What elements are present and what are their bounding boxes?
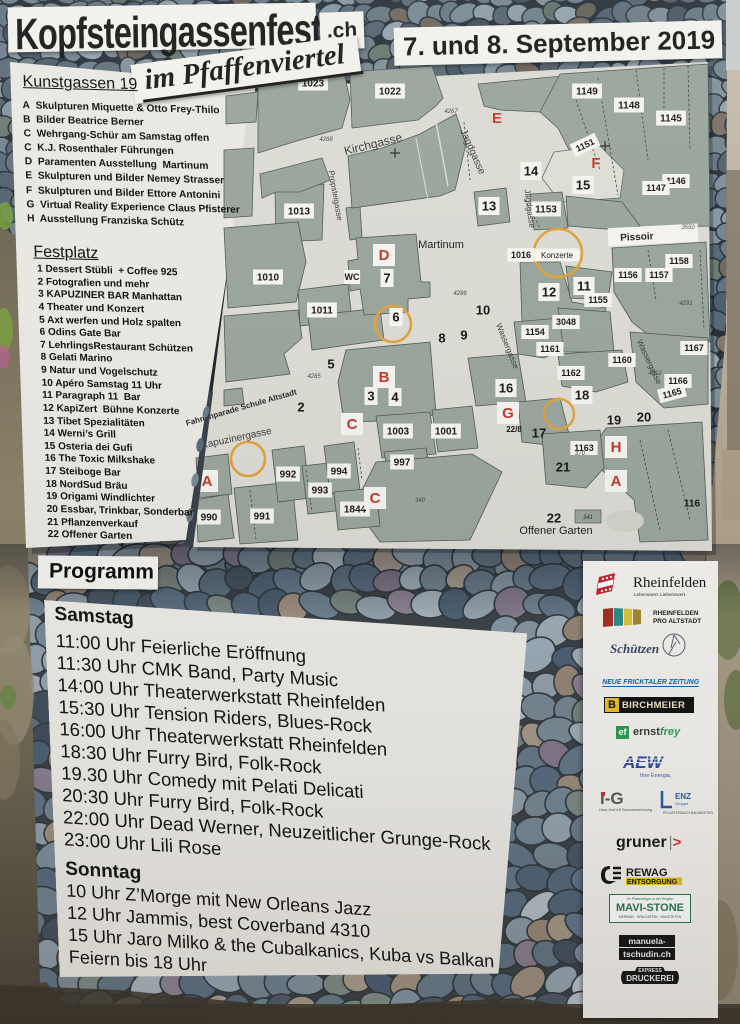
svg-text:1167: 1167 xyxy=(684,343,704,353)
svg-text:Rheinfelden: Rheinfelden xyxy=(633,575,707,591)
svg-text:8: 8 xyxy=(438,331,445,346)
svg-text:REWAG: REWAG xyxy=(626,867,668,879)
svg-text:1154: 1154 xyxy=(525,327,545,337)
svg-text:10: 10 xyxy=(476,303,490,318)
svg-text:PRO ALTSTADT: PRO ALTSTADT xyxy=(653,618,701,625)
svg-text:993: 993 xyxy=(312,486,329,497)
svg-text:RHEINFELDEN: RHEINFELDEN xyxy=(653,610,699,617)
svg-text:16: 16 xyxy=(499,381,513,396)
svg-text:PFLASTERBACH BAUMEISTER: PFLASTERBACH BAUMEISTER xyxy=(663,811,713,815)
svg-text:3: 3 xyxy=(367,389,374,404)
svg-text:1155: 1155 xyxy=(588,295,608,305)
svg-text:1145: 1145 xyxy=(660,114,682,125)
svg-text:4267: 4267 xyxy=(444,109,458,115)
svg-text:1161: 1161 xyxy=(540,344,560,354)
svg-text:4285: 4285 xyxy=(307,374,321,380)
svg-text:1162: 1162 xyxy=(561,368,581,378)
svg-text:17: 17 xyxy=(532,426,546,441)
svg-text:3550: 3550 xyxy=(681,225,695,231)
svg-text:14: 14 xyxy=(524,164,539,179)
svg-text:7: 7 xyxy=(383,271,390,286)
svg-text:13: 13 xyxy=(482,199,496,214)
svg-text:4286: 4286 xyxy=(453,291,467,297)
svg-text:2: 2 xyxy=(297,400,304,415)
svg-text:22/8: 22/8 xyxy=(506,425,522,434)
svg-text:1157: 1157 xyxy=(649,270,669,280)
svg-text:9: 9 xyxy=(460,328,467,343)
svg-text:A: A xyxy=(611,473,622,490)
svg-text:1156: 1156 xyxy=(618,270,638,280)
svg-text:C: C xyxy=(347,416,358,433)
svg-text:Gruppe: Gruppe xyxy=(675,801,689,806)
svg-text:Hans Graf AG Bauunternehmung: Hans Graf AG Bauunternehmung xyxy=(599,808,652,812)
svg-text:6: 6 xyxy=(392,310,399,325)
svg-text:1147: 1147 xyxy=(646,183,666,193)
svg-text:Ihre Energia.: Ihre Energia. xyxy=(640,773,672,779)
svg-text:15: 15 xyxy=(576,178,590,193)
svg-text:12: 12 xyxy=(542,285,556,300)
svg-text:D: D xyxy=(379,247,390,264)
svg-text:B: B xyxy=(379,369,390,386)
svg-text:341: 341 xyxy=(583,515,593,521)
svg-text:5: 5 xyxy=(327,357,334,372)
svg-text:1148: 1148 xyxy=(618,101,640,112)
svg-text:I-G: I-G xyxy=(600,789,624,808)
svg-text:Schützen: Schützen xyxy=(610,641,659,656)
svg-text:Pissoir: Pissoir xyxy=(620,231,654,244)
svg-text:1149: 1149 xyxy=(576,87,598,98)
svg-text:1153: 1153 xyxy=(535,205,557,216)
svg-text:997: 997 xyxy=(394,458,411,469)
svg-text:Offener Garten: Offener Garten xyxy=(519,525,592,537)
svg-text:ENTSORGUNG: ENTSORGUNG xyxy=(627,879,678,886)
svg-text:DRUCKEREI: DRUCKEREI xyxy=(626,974,674,983)
svg-text:994: 994 xyxy=(331,467,348,478)
svg-text:4268: 4268 xyxy=(319,137,333,143)
svg-text:19: 19 xyxy=(607,413,621,428)
svg-text:11: 11 xyxy=(577,279,591,294)
svg-text:22: 22 xyxy=(547,511,561,526)
svg-text:116: 116 xyxy=(684,499,701,510)
svg-text:20: 20 xyxy=(637,410,651,425)
svg-text:CH: CH xyxy=(647,984,654,989)
svg-text:370: 370 xyxy=(575,451,586,457)
svg-text:992: 992 xyxy=(280,470,297,481)
svg-text:1158: 1158 xyxy=(669,256,689,266)
svg-text:4: 4 xyxy=(391,390,399,405)
svg-text:G: G xyxy=(502,405,514,422)
svg-text:21: 21 xyxy=(556,460,570,475)
svg-text:1016: 1016 xyxy=(511,250,531,260)
svg-text:F: F xyxy=(591,155,600,172)
svg-text:1022: 1022 xyxy=(379,87,402,98)
svg-text:1844: 1844 xyxy=(344,505,367,516)
svg-text:340: 340 xyxy=(415,498,426,504)
svg-text:ENZ: ENZ xyxy=(675,792,691,801)
svg-text:18: 18 xyxy=(575,388,589,403)
svg-text:C: C xyxy=(370,490,381,507)
svg-text:1160: 1160 xyxy=(612,355,632,365)
svg-text:E: E xyxy=(492,110,502,127)
svg-text:Konzerte: Konzerte xyxy=(541,251,574,260)
svg-text:4291: 4291 xyxy=(679,301,692,307)
svg-text:1003: 1003 xyxy=(387,427,410,438)
svg-text:Lebenswert. Liebenswert.: Lebenswert. Liebenswert. xyxy=(634,592,686,597)
svg-text:Martinum: Martinum xyxy=(418,239,464,251)
svg-text:1011: 1011 xyxy=(311,306,333,317)
svg-text:WC: WC xyxy=(345,272,360,282)
svg-text:1013: 1013 xyxy=(288,207,311,218)
svg-text:H: H xyxy=(611,439,622,456)
svg-text:1001: 1001 xyxy=(435,427,458,438)
svg-text:4292: 4292 xyxy=(648,371,662,377)
svg-text:3048: 3048 xyxy=(556,317,576,327)
